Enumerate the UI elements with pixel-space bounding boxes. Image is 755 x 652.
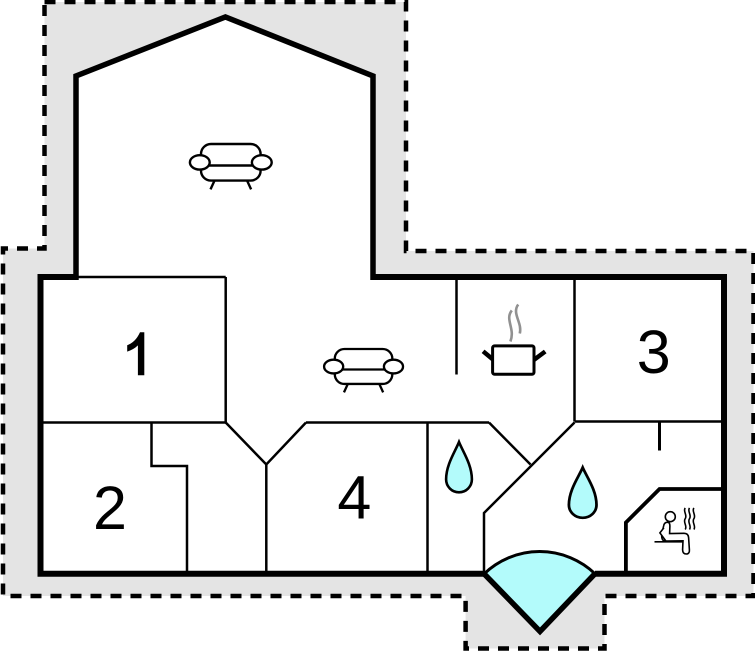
svg-text:2: 2 xyxy=(93,474,127,542)
svg-text:4: 4 xyxy=(337,464,371,532)
svg-text:3: 3 xyxy=(637,318,671,386)
